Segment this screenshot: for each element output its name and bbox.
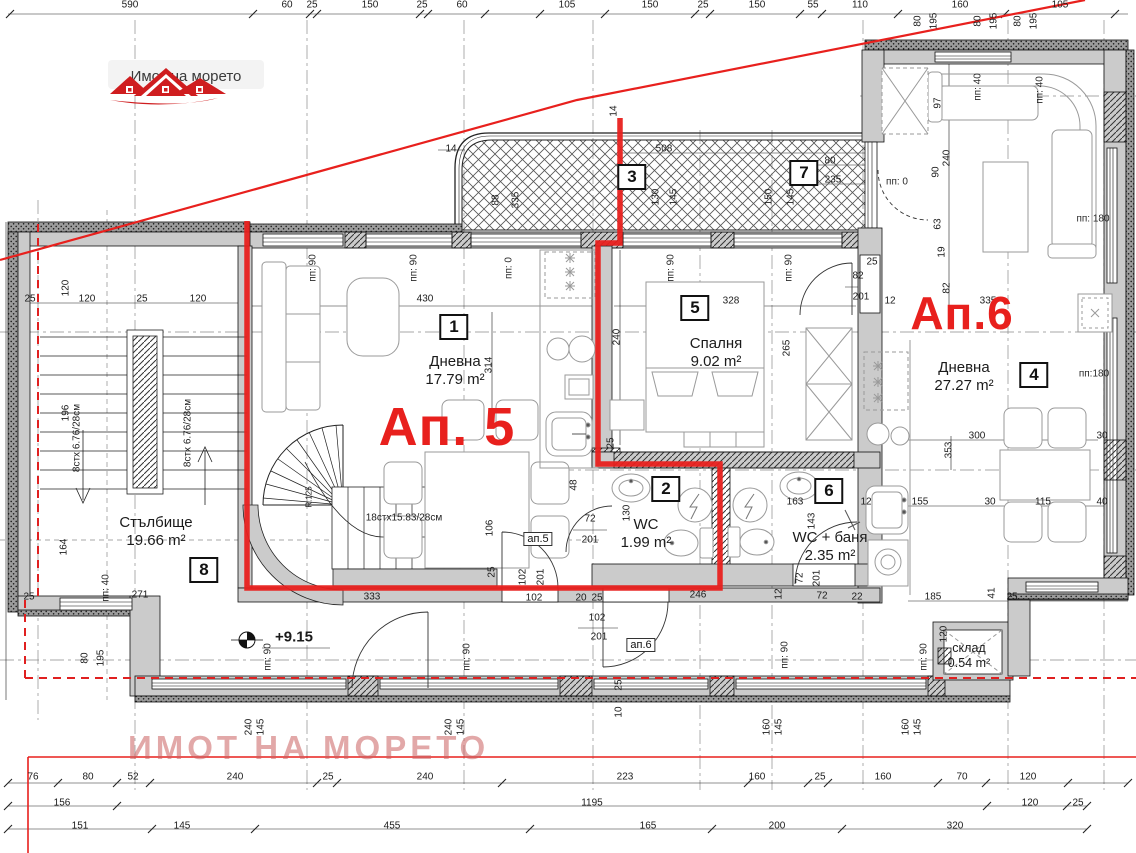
dimension-label: 223: [617, 772, 634, 783]
dimension-label: 120: [939, 626, 950, 643]
dimension-label: 60: [281, 0, 292, 11]
window-parapet-label: пп:180: [1079, 369, 1109, 380]
dimension-label: 455: [384, 821, 401, 832]
room-number-box: 8: [189, 557, 218, 583]
dimension-label: 19: [937, 246, 948, 257]
stair-note: 18стх15.83/28см: [366, 513, 443, 524]
dimension-label: 235: [825, 175, 842, 186]
dimension-label: 41: [987, 587, 998, 598]
apartment-label: Ап. 5: [379, 396, 516, 458]
dimension-label: 30: [1096, 431, 1107, 442]
dimension-label: 20: [575, 593, 586, 604]
window-parapet-label: пп: 90: [409, 254, 420, 282]
dimension-label: 80: [973, 15, 984, 26]
dimension-label: 25: [306, 0, 317, 11]
room-number-box: 4: [1019, 362, 1048, 388]
dimension-label: 48: [569, 479, 580, 490]
window-parapet-label: пп: 40: [101, 574, 112, 602]
dimension-label: 201: [812, 570, 823, 587]
dimension-label: 110: [852, 0, 868, 11]
dimension-label: 196: [61, 405, 72, 422]
dimension-label: 120: [1022, 798, 1039, 809]
dimension-label: 80: [82, 772, 93, 783]
level-mark-text: +9.15: [275, 629, 313, 646]
dimension-label: 150: [764, 189, 775, 206]
dimension-label: 240: [942, 150, 953, 167]
dimension-label: 320: [947, 821, 964, 832]
dimension-label: 102: [518, 569, 529, 586]
dimension-label: 145: [786, 189, 797, 206]
dimension-label: 201: [853, 292, 870, 303]
window-parapet-label: пп: 90: [784, 254, 795, 282]
dimension-label: 52: [127, 772, 138, 783]
dimension-label: 240: [444, 719, 455, 736]
dimension-label: 25: [814, 772, 825, 783]
dimension-label: 12: [860, 497, 871, 508]
room-label: Спалня9.02 m²: [690, 335, 742, 371]
room-name: склад: [948, 641, 990, 656]
room-area: 17.79 m²: [425, 371, 484, 389]
dimension-label: 151: [72, 821, 89, 832]
window-parapet-label: пп: 90: [780, 641, 791, 669]
room-label: Стълбище19.66 m²: [119, 514, 192, 550]
dimension-label: 265: [782, 340, 793, 357]
dimension-label: 590: [122, 0, 139, 11]
dimension-label: 201: [591, 632, 608, 643]
dimension-label: 160: [952, 0, 969, 11]
room-number-box: 1: [439, 314, 468, 340]
dimension-label: 195: [1029, 13, 1040, 30]
room-area: 19.66 m²: [119, 532, 192, 550]
dimension-label: 145: [456, 719, 467, 736]
room-name: WC: [621, 516, 672, 534]
window-parapet-label: пп: 90: [462, 643, 473, 671]
stair-note: R.125: [305, 486, 314, 507]
room-label: Дневна17.79 m²: [425, 353, 484, 389]
dimension-label: 200: [769, 821, 786, 832]
dimension-label: 160: [875, 772, 892, 783]
dimension-label: 14: [609, 105, 620, 116]
dimension-label: 300: [969, 431, 986, 442]
dimension-label: 1195: [581, 798, 603, 809]
room-name: WC + баня: [792, 529, 867, 547]
dimension-label: 314: [484, 357, 495, 374]
dimension-label: 240: [227, 772, 244, 783]
dimension-label: 25: [23, 592, 34, 603]
dimension-label: 40: [1096, 497, 1107, 508]
dimension-label: 160: [749, 772, 766, 783]
dimension-label: 102: [589, 613, 606, 624]
dimension-label: 195: [989, 13, 1000, 30]
dimension-label: 120: [61, 280, 72, 297]
dimension-label: 195: [96, 650, 107, 667]
window-parapet-label: пп: 90: [666, 254, 677, 282]
room-name: Стълбище: [119, 514, 192, 532]
dimension-label: 25: [24, 294, 35, 305]
dimension-label: 80: [913, 15, 924, 26]
window-parapet-label: пп: 180: [1076, 214, 1109, 225]
dimension-label: 240: [417, 772, 434, 783]
dimension-label: 72: [795, 572, 806, 583]
room-label: склад0.54 m²: [948, 641, 990, 671]
room-number-box: 3: [617, 164, 646, 190]
dimension-label: 156: [54, 798, 71, 809]
dimension-label: 25: [416, 0, 427, 11]
dimension-label: 120: [1020, 772, 1037, 783]
room-area: 2.35 m²: [792, 547, 867, 565]
room-name: Дневна: [934, 359, 993, 377]
dimension-label: 25: [591, 593, 602, 604]
dimension-label: 80: [80, 652, 91, 663]
room-area: 0.54 m²: [948, 656, 990, 671]
window-parapet-label: пп: 0: [504, 257, 515, 279]
dimension-label: 105: [1052, 0, 1069, 11]
dimension-label: 90: [931, 166, 942, 177]
dimension-label: 60: [456, 0, 467, 11]
dimension-label: 430: [417, 294, 434, 305]
dimension-label: 80: [1013, 15, 1024, 26]
dimension-label: 70: [956, 772, 967, 783]
dimension-label: 145: [256, 719, 267, 736]
room-number-box: 6: [814, 478, 843, 504]
room-label: Дневна27.27 m²: [934, 359, 993, 395]
dimension-label: 185: [925, 592, 942, 603]
room-label: WC + баня2.35 m²: [792, 529, 867, 565]
dimension-label: 150: [362, 0, 379, 11]
apartment-door-tag: ап.6: [626, 638, 655, 652]
dimension-label: 10: [614, 706, 625, 717]
room-area: 27.27 m²: [934, 377, 993, 395]
window-parapet-label: пп: 40: [1035, 76, 1046, 104]
dimension-label: 12: [774, 588, 785, 599]
dimension-label: 145: [174, 821, 191, 832]
room-area: 1.99 m²: [621, 534, 672, 552]
dimension-label: 246: [690, 590, 707, 601]
window-parapet-label: пп: 90: [263, 643, 274, 671]
dimension-label: 145: [913, 719, 924, 736]
room-number-box: 2: [651, 476, 680, 502]
dimension-label: 25: [322, 772, 333, 783]
dimension-label: 130: [651, 189, 662, 206]
window-parapet-label: пп: 40: [973, 73, 984, 101]
dimension-label: 145: [669, 189, 680, 206]
dimension-label: 22: [851, 592, 862, 603]
dimension-label: 25: [866, 257, 877, 268]
room-number-box: 7: [789, 160, 818, 186]
dimension-label: 25: [1006, 592, 1017, 603]
dimension-label: 165: [640, 821, 657, 832]
dimension-label: 143: [807, 513, 818, 530]
dimension-label: 120: [79, 294, 96, 305]
dimension-label: 80: [824, 156, 835, 167]
dimension-label: 335: [511, 192, 522, 209]
dimension-label: 240: [244, 719, 255, 736]
dimension-label: 201: [536, 569, 547, 586]
dimension-label: 25: [136, 294, 147, 305]
dimension-label: 55: [807, 0, 818, 11]
dimension-label: 25: [614, 679, 625, 690]
dimension-label: 72: [816, 591, 827, 602]
dimension-label: 333: [364, 592, 381, 603]
dimension-label: 240: [612, 329, 623, 346]
plan-text-labels: 5906025150256010515025150551101601058019…: [0, 0, 1136, 853]
window-parapet-label: пп: 0: [886, 177, 908, 188]
dimension-label: 145: [774, 719, 785, 736]
room-name: Дневна: [425, 353, 484, 371]
stair-note: 8стх 6.76/28см: [183, 399, 194, 467]
dimension-label: 163: [787, 497, 804, 508]
room-label: WC1.99 m²: [621, 516, 672, 552]
dimension-label: 508: [656, 144, 673, 155]
dimension-label: 14: [445, 144, 456, 155]
dimension-label: 12: [884, 296, 895, 307]
dimension-label: 150: [749, 0, 766, 11]
window-parapet-label: пп: 90: [919, 643, 930, 671]
dimension-label: 271: [132, 590, 149, 601]
dimension-label: 115: [1035, 497, 1051, 508]
dimension-label: 105: [559, 0, 576, 11]
dimension-label: 72: [584, 514, 595, 525]
dimension-label: 160: [901, 719, 912, 736]
apartment-door-tag: ап.5: [523, 532, 552, 546]
dimension-label: 88: [491, 194, 502, 205]
dimension-label: 25: [1072, 798, 1083, 809]
dimension-label: 120: [190, 294, 207, 305]
dimension-label: 25: [606, 437, 617, 448]
dimension-label: 150: [642, 0, 659, 11]
dimension-label: 97: [933, 97, 944, 108]
floor-plan-page: Имот на морето ИМОТ НА МОРЕТО 5906025150…: [0, 0, 1136, 853]
dimension-label: 164: [59, 539, 70, 556]
apartment-label: Ап.6: [910, 286, 1013, 340]
dimension-label: 102: [526, 593, 543, 604]
window-parapet-label: пп: 90: [308, 254, 319, 282]
dimension-label: 160: [762, 719, 773, 736]
stair-note: 8стх 6.76/28см: [72, 404, 83, 472]
dimension-label: 63: [933, 218, 944, 229]
dimension-label: 328: [723, 296, 740, 307]
dimension-label: 30: [984, 497, 995, 508]
dimension-label: 76: [27, 772, 38, 783]
room-name: Спалня: [690, 335, 742, 353]
dimension-label: 201: [582, 535, 599, 546]
dimension-label: 25: [697, 0, 708, 11]
room-number-box: 5: [680, 295, 709, 321]
dimension-label: 25: [487, 566, 498, 577]
dimension-label: 82: [852, 271, 863, 282]
dimension-label: 155: [912, 497, 929, 508]
dimension-label: 353: [944, 442, 955, 459]
dimension-label: 106: [485, 520, 496, 537]
room-area: 9.02 m²: [690, 353, 742, 371]
dimension-label: 195: [929, 13, 940, 30]
